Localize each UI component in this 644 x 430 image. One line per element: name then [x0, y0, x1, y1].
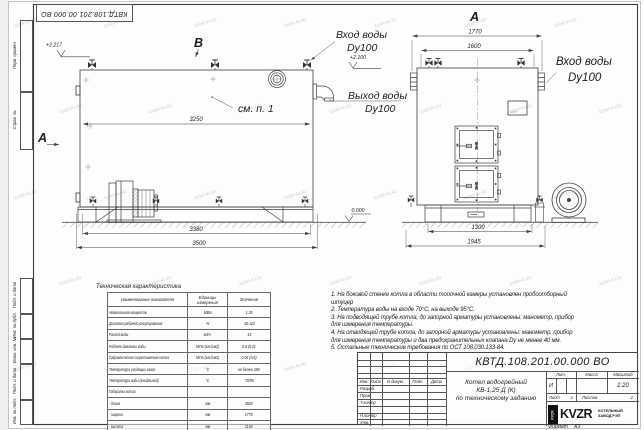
doc-number-stamp: КВТД.108.201.00.000 ВО [36, 4, 133, 22]
spec-name: Гидравлическое сопротивление котла [109, 355, 169, 360]
spec-value: 0,06 (0,6) [241, 355, 256, 360]
spec-header-row: Наименование показателя Единицы измерени… [108, 293, 271, 307]
margin-label: Справ. № [9, 91, 21, 149]
margin-label: Инв. № подл. [9, 399, 21, 424]
spec-value: 0,6 (6,0) [242, 344, 255, 349]
sheet-value: 1 [571, 395, 573, 400]
col-list: Лист [370, 378, 382, 385]
margin-label: Подп. и дата [9, 277, 21, 313]
margin-box-perv-primen: Перв. примен. [20, 20, 33, 92]
spec-row: Рабочее давление водыМПа (кгс/см2)0,6 (6… [108, 341, 271, 352]
spec-unit: °С [205, 367, 209, 372]
kvzr-logo-sub2: ЗАВОД РЭП [598, 414, 623, 419]
row-prov: Пров. [358, 392, 382, 399]
col-data: Дата [427, 378, 446, 385]
doc-number-stamp-text: КВТД.108.201.00.000 ВО [41, 10, 128, 17]
spec-row: - высотамм2150 [108, 420, 271, 430]
spec-name: Рабочее давление воды [109, 344, 146, 349]
drawing-sheet: kotel-kv.kzkotel-kv.kzkotel-kv.kzkotel-k… [0, 0, 644, 430]
spec-row: Номинальная мощностьМВт1,25 [108, 307, 271, 318]
spec-value: не более 280 [238, 367, 260, 372]
margin-label: Инв. № дубл. [9, 313, 21, 338]
spec-row: Габариты котла [108, 386, 271, 397]
margin-box-sprav: Справ. № [20, 92, 33, 150]
spec-value: 40-110 [244, 321, 255, 326]
spec-unit: МВт [203, 310, 211, 315]
sheet-label: Лист [549, 395, 560, 400]
format-value: А3 [574, 424, 580, 430]
spec-row: - ширинамм1770 [108, 409, 271, 420]
spec-value: 1770 [245, 412, 253, 417]
scale-value: 1:20 [607, 378, 639, 393]
sheets-value: 2 [631, 395, 633, 400]
spec-row: Диапазон рабочего регулирования%40-110 [108, 318, 271, 329]
row-utv: Утв. [358, 419, 382, 426]
spec-value: 70/95 [244, 378, 253, 383]
spec-name: Номинальная мощность [109, 310, 147, 315]
spec-value: 3500 [245, 401, 253, 406]
kvzr-logo-text: KVZR [560, 407, 592, 421]
spec-name: Габариты котла [109, 389, 135, 394]
title-doc-number: КВТД.108.201.00.000 ВО [446, 353, 639, 371]
spec-col-name: Наименование показателя [108, 293, 188, 307]
spec-table-title: Техническая характеристика [96, 284, 181, 290]
spec-unit: мм [205, 412, 210, 417]
spec-name: Температура воды (вход/выход) [109, 378, 159, 383]
note-item: 3. На подводящей трубе котла, до запорно… [331, 315, 583, 330]
spec-unit: м3/ч [204, 332, 211, 337]
spec-col-value: Значение [227, 293, 270, 307]
col-doc: N докум. [382, 378, 409, 385]
spec-unit: МПа (кгс/см2) [196, 355, 219, 360]
sheets-cell: Листов 2 [576, 393, 639, 401]
format-label: Формат [548, 424, 568, 430]
margin-box-inv-podl: Инв. № подл. [20, 400, 33, 425]
spec-row: Расход водым3/ч43 [108, 329, 271, 340]
spec-table: Наименование показателя Единицы измерени… [107, 292, 271, 430]
spec-value: 2150 [245, 424, 253, 429]
product-name-line2: КВ-1,25 Д (К) [456, 387, 536, 395]
spec-unit: МПа (кгс/см2) [196, 344, 219, 349]
sheet-cell: Лист 1 [546, 393, 576, 401]
margin-label: Перв. примен. [9, 19, 21, 91]
spec-name: Расход воды [109, 332, 128, 337]
title-block: КВТД.108.201.00.000 ВО Изм. Лист N докум… [357, 352, 638, 425]
spec-name: - ширина [109, 412, 123, 417]
margin-box-inv-dubl: Инв. № дубл. [20, 314, 33, 339]
spec-name: - высота [109, 424, 123, 429]
row-razrab: Разраб. [358, 385, 382, 392]
spec-row: Температура воды (вход/выход)°С70/95 [108, 375, 271, 386]
spec-row: Гидравлическое сопротивление котлаМПа (к… [108, 352, 271, 363]
mass-label: Масса [576, 371, 607, 378]
spec-name: Диапазон рабочего регулирования [109, 321, 162, 326]
col-podp: Подп. [409, 378, 427, 385]
spec-row: - длинамм3500 [108, 398, 271, 409]
scale-label: Масштаб [607, 371, 639, 378]
col-izm: Изм. [358, 378, 370, 385]
kvzr-logo-sub1: КОТЕЛЬНЫЙ [598, 409, 623, 414]
spec-unit: °С [205, 378, 209, 383]
kvzr-logo-vertical-text: KVZR [551, 410, 555, 419]
spec-value: 1,25 [245, 310, 252, 315]
spec-value: 43 [247, 332, 251, 337]
margin-label: Подп. и дата [9, 363, 21, 399]
product-name-line3: по техническому заданию [456, 395, 536, 403]
sheets-label: Листов [582, 395, 597, 400]
spec-name: - длина [109, 401, 120, 406]
spec-col-unit: Единицы измерения [187, 293, 227, 307]
spec-unit: мм [205, 401, 210, 406]
lit-label: Лит. [546, 371, 576, 378]
note-item: 2. Температура воды на входе 70°С, на вы… [331, 307, 583, 315]
note-item: 1. На боковой стенке котла в области топ… [331, 292, 583, 307]
margin-label: Взам. инв. № [9, 338, 21, 363]
spec-name: Температура уходящих газов [109, 367, 155, 372]
row-tkontr: Т.контр [358, 399, 382, 406]
margin-box-vzam-inv: Взам. инв. № [20, 339, 33, 364]
note-item: 4. На отводящей трубе котла, до запорной… [331, 330, 583, 345]
kvzr-logo-mark: KVZR [548, 405, 558, 424]
kvzr-logo-subtext: КОТЕЛЬНЫЙ ЗАВОД РЭП [598, 409, 623, 418]
spec-unit: % [206, 321, 209, 326]
product-name-line1: Котел водогрейный [456, 379, 536, 387]
product-name: Котел водогрейный КВ-1,25 Д (К) по техни… [446, 371, 546, 411]
spec-row: Температура уходящих газов°Сне более 280 [108, 363, 271, 374]
margin-box-podp-data-1: Подп. и дата [20, 278, 33, 314]
margin-box-podp-data-2: Подп. и дата [20, 364, 33, 400]
technical-notes: 1. На боковой стенке котла в области топ… [331, 292, 583, 353]
spec-unit: мм [205, 424, 210, 429]
lit-value: И [546, 378, 556, 393]
